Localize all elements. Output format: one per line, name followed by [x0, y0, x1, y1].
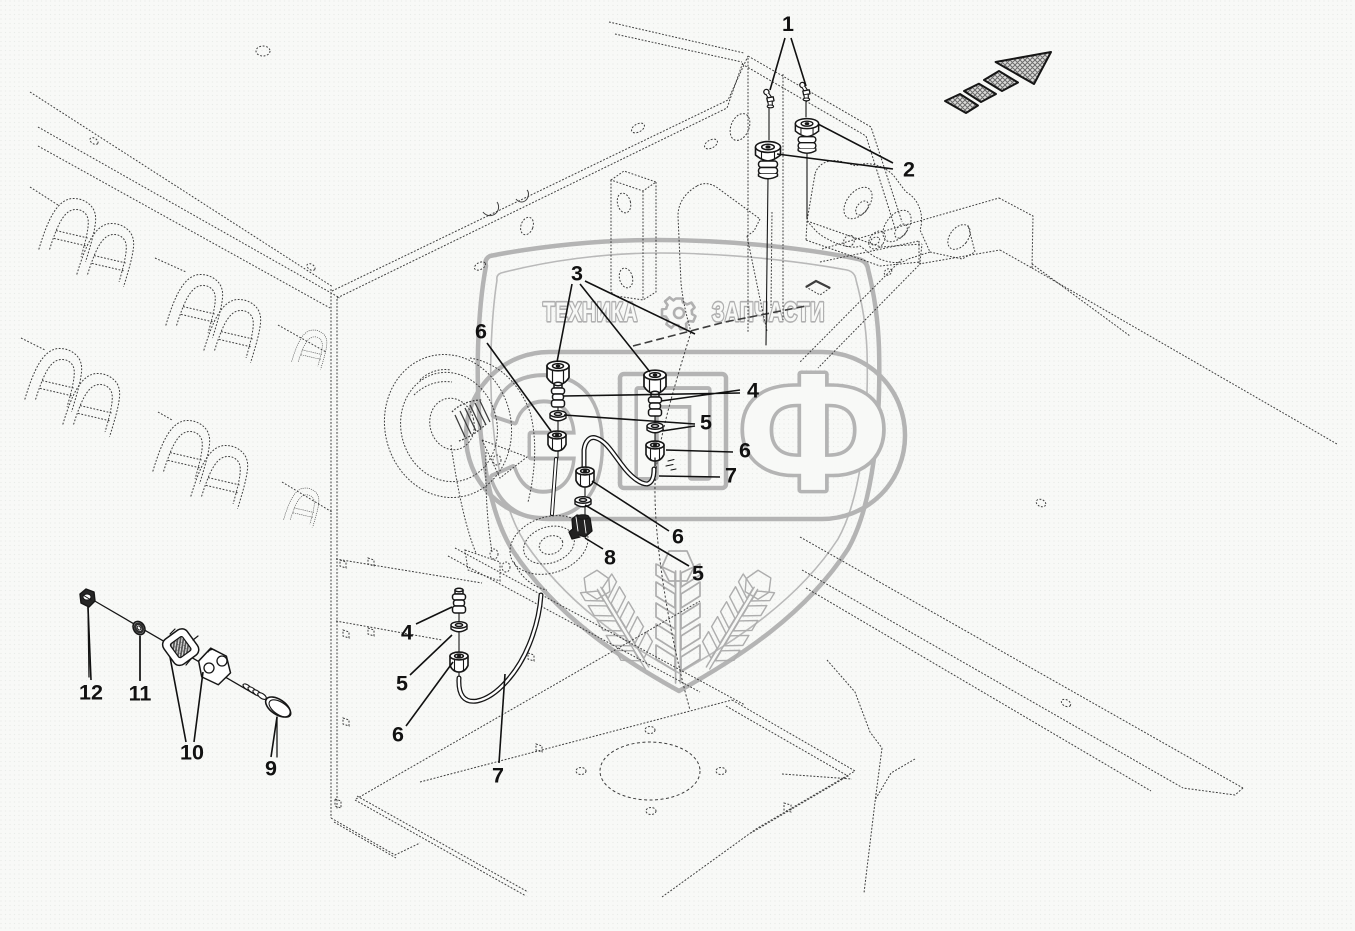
svg-text:7: 7 [725, 464, 737, 488]
svg-text:4: 4 [401, 621, 413, 645]
svg-text:3: 3 [571, 262, 583, 286]
svg-text:11: 11 [129, 682, 152, 706]
svg-text:6: 6 [672, 525, 684, 549]
svg-text:Ф: Ф [738, 340, 888, 525]
svg-text:5: 5 [396, 672, 408, 696]
svg-text:2: 2 [903, 158, 915, 182]
svg-text:6: 6 [739, 439, 751, 463]
svg-text:ЗАПЧАСТИ: ЗАПЧАСТИ [712, 297, 825, 327]
svg-text:8: 8 [604, 546, 616, 570]
svg-text:6: 6 [392, 723, 404, 747]
svg-text:12: 12 [79, 681, 103, 705]
svg-text:ТЕХНИКА: ТЕХНИКА [543, 297, 638, 327]
svg-text:1: 1 [782, 12, 794, 36]
svg-text:6: 6 [475, 320, 487, 344]
svg-text:7: 7 [492, 764, 504, 788]
svg-text:10: 10 [180, 741, 204, 765]
svg-text:5: 5 [700, 411, 712, 435]
svg-text:5: 5 [692, 562, 704, 586]
svg-text:4: 4 [747, 379, 759, 403]
svg-text:9: 9 [265, 757, 277, 781]
